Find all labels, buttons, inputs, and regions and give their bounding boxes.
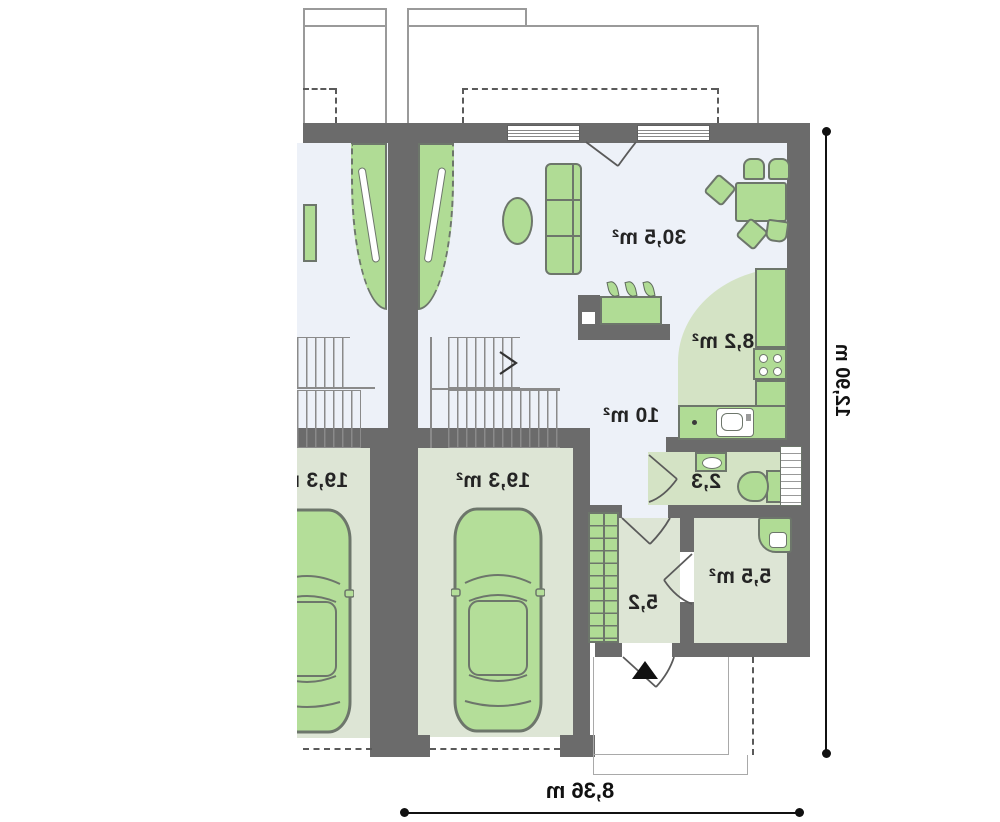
roof-outline-line bbox=[407, 25, 758, 27]
fireplace-firebox bbox=[600, 296, 662, 325]
window-symbol bbox=[637, 125, 710, 141]
faucet-symbol bbox=[746, 414, 751, 421]
overhang-dashed-line bbox=[335, 88, 337, 123]
living-room-area-label: 30,5 m² bbox=[599, 226, 699, 250]
vertical-dimension-line bbox=[825, 131, 827, 753]
left-garage-door-dashed bbox=[303, 748, 372, 750]
wc-sink-symbol bbox=[695, 452, 727, 472]
roof-outline-line bbox=[303, 8, 305, 123]
boiler-symbol bbox=[758, 517, 792, 553]
staircase-boundary bbox=[430, 337, 432, 448]
bottom-garage-wall-segment bbox=[560, 735, 595, 757]
left-staircase-lower-flight bbox=[297, 390, 361, 448]
kitchen-counter bbox=[755, 380, 787, 408]
dining-table-symbol bbox=[735, 182, 787, 222]
dimension-dot bbox=[822, 127, 831, 136]
porch-outline bbox=[593, 657, 729, 755]
staircase-direction-arrow bbox=[498, 350, 520, 376]
party-wall bbox=[388, 123, 418, 757]
left-tv-symbol bbox=[358, 167, 381, 263]
dimension-dot bbox=[400, 808, 409, 817]
roof-outline-line bbox=[303, 8, 385, 10]
sink-bowl bbox=[721, 413, 743, 431]
chair-symbol bbox=[743, 158, 765, 180]
staircase-lower-flight bbox=[448, 390, 560, 448]
terrace-door-arc bbox=[584, 140, 640, 170]
bottom-wall-segment bbox=[595, 643, 622, 657]
roof-outline-line bbox=[303, 25, 385, 27]
overhang-dashed-line bbox=[462, 88, 717, 90]
left-furniture-symbol bbox=[303, 204, 317, 262]
roof-outline-line bbox=[385, 8, 387, 123]
horizontal-dimension-label: 8,36 m bbox=[520, 778, 640, 804]
porch-overhang-dashed bbox=[752, 657, 754, 755]
horizontal-dimension-line bbox=[404, 812, 800, 814]
vertical-dimension-label-wrap: 12,90 m bbox=[816, 330, 868, 430]
roof-outline-line bbox=[525, 8, 527, 25]
car-symbol bbox=[451, 505, 545, 735]
left-staircase-upper-flight bbox=[297, 337, 350, 388]
wardrobe-symbol bbox=[588, 512, 619, 643]
roof-outline-line bbox=[407, 8, 409, 123]
left-garage-area-label: 19,3 m² bbox=[297, 469, 371, 493]
sofa-symbol bbox=[545, 163, 582, 275]
toilet-bowl bbox=[737, 471, 769, 502]
garage-door-dashed bbox=[430, 748, 560, 750]
dimension-dot bbox=[822, 749, 831, 758]
entry-hall-area-label: 5,2 bbox=[608, 591, 678, 615]
left-staircase-divider bbox=[297, 387, 375, 389]
right-exterior-wall bbox=[787, 123, 810, 657]
window-symbol bbox=[507, 125, 580, 141]
wc-area-label: 2,3 bbox=[671, 470, 741, 494]
dimension-dot bbox=[795, 808, 804, 817]
hall-area-label: 10 m² bbox=[581, 404, 681, 428]
porch-step-outline bbox=[593, 755, 748, 775]
sink-symbol bbox=[716, 408, 754, 437]
fireplace-hearth bbox=[578, 324, 670, 340]
party-wall-garage-section bbox=[370, 428, 388, 757]
cabinet-knob bbox=[692, 420, 697, 425]
entry-utility-wall-lower bbox=[680, 602, 694, 643]
garage-area-label: 19,3 m² bbox=[443, 469, 543, 493]
radiator-symbol bbox=[780, 446, 802, 506]
kitchen-area-label: 8,2 m² bbox=[673, 330, 773, 354]
bottom-garage-wall-segment bbox=[370, 735, 430, 757]
roof-outline-line bbox=[407, 8, 525, 10]
entry-utility-wall-upper bbox=[680, 518, 694, 552]
tv-symbol bbox=[424, 167, 447, 263]
hall-door-arc bbox=[620, 516, 672, 550]
vertical-dimension-label: 12,90 m bbox=[831, 343, 854, 416]
chair-symbol bbox=[768, 158, 790, 180]
floor-plan: 19,3 m² bbox=[0, 0, 1000, 822]
coffee-table-symbol bbox=[502, 197, 533, 245]
utility-area-label: 5,5 m² bbox=[690, 565, 790, 589]
left-car-symbol bbox=[297, 506, 354, 736]
roof-outline-line bbox=[757, 25, 759, 123]
overhang-dashed-line bbox=[462, 88, 464, 123]
overhang-dashed-line bbox=[717, 88, 719, 123]
bottom-wall-segment bbox=[672, 643, 810, 657]
overhang-dashed-line bbox=[303, 88, 335, 90]
staircase-divider bbox=[430, 388, 560, 390]
